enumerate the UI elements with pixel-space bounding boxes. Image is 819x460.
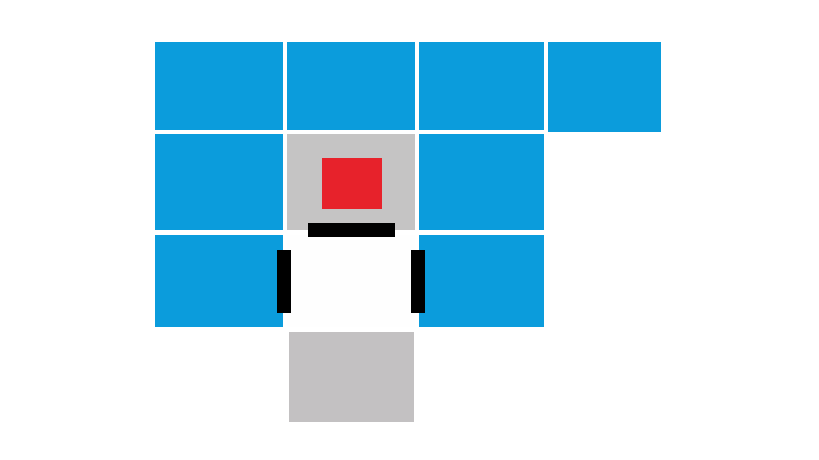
wall-tile-r3c3 — [419, 235, 544, 327]
wall-tile-r1c2 — [287, 42, 415, 130]
wall-tile-r1c3 — [419, 42, 544, 130]
red-button[interactable] — [322, 158, 382, 209]
wall-tile-r1c4 — [548, 42, 661, 132]
player-top-bar — [308, 223, 395, 237]
wall-tile-r1c1 — [155, 42, 283, 130]
floor-tile-r4c2 — [289, 332, 414, 422]
wall-tile-r2c1 — [155, 134, 283, 230]
player-tile[interactable] — [287, 235, 415, 327]
game-board — [0, 0, 819, 460]
player-right-bar — [411, 250, 425, 313]
wall-tile-r3c1 — [155, 235, 283, 327]
player-left-bar — [277, 250, 291, 313]
wall-tile-r2c3 — [419, 134, 544, 230]
